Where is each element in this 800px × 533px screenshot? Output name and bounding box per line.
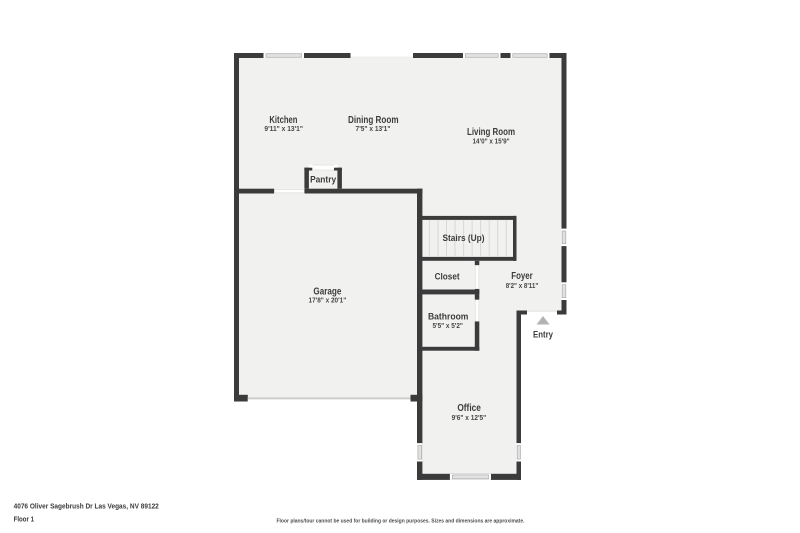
svg-text:5'5" x 5'2": 5'5" x 5'2" <box>433 321 464 330</box>
svg-text:14'0" x 15'9": 14'0" x 15'9" <box>473 136 510 145</box>
svg-text:9'6" x 12'5": 9'6" x 12'5" <box>452 413 487 422</box>
svg-text:Stairs (Up): Stairs (Up) <box>443 233 485 244</box>
svg-text:8'2" x 8'11": 8'2" x 8'11" <box>506 281 539 290</box>
svg-text:9'11" x 13'1": 9'11" x 13'1" <box>264 124 303 133</box>
svg-text:Floor 1: Floor 1 <box>14 515 34 524</box>
svg-text:Closet: Closet <box>435 272 461 283</box>
svg-text:Floor plans/tour cannot be use: Floor plans/tour cannot be used for buil… <box>277 518 525 524</box>
svg-text:17'8" x 20'1": 17'8" x 20'1" <box>309 295 347 304</box>
svg-text:7'5" x 13'1": 7'5" x 13'1" <box>356 124 391 133</box>
svg-text:Pantry: Pantry <box>310 175 337 186</box>
svg-text:Entry: Entry <box>533 329 553 339</box>
svg-text:4076 Oliver Sagebrush Dr Las V: 4076 Oliver Sagebrush Dr Las Vegas, NV 8… <box>14 501 159 510</box>
